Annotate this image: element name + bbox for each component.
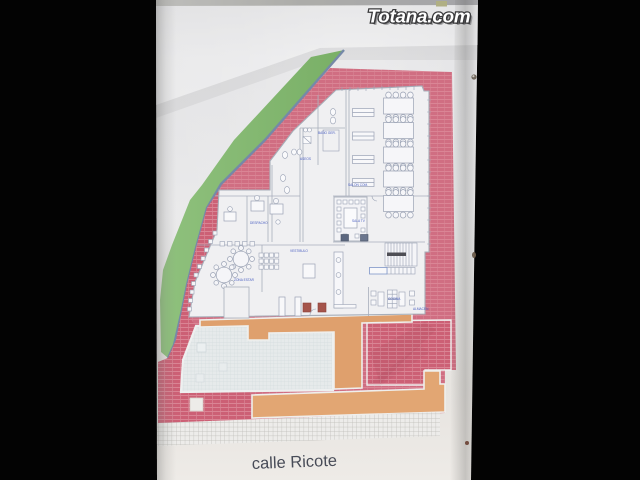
svg-text:ASEOS: ASEOS: [300, 157, 311, 161]
svg-text:calle Ricote: calle Ricote: [251, 452, 337, 473]
svg-text:DESPACHO: DESPACHO: [250, 221, 268, 225]
svg-text:VESTIBULO: VESTIBULO: [290, 249, 308, 253]
svg-text:SALA TV: SALA TV: [352, 219, 366, 223]
svg-text:SALON COM.: SALON COM.: [348, 183, 368, 187]
svg-text:COCINA: COCINA: [388, 297, 401, 301]
svg-text:Totana.com: Totana.com: [368, 6, 471, 27]
svg-text:BAÑO GER.: BAÑO GER.: [318, 130, 336, 135]
svg-text:ZONA ESTAR: ZONA ESTAR: [234, 278, 255, 282]
svg-text:ALMACEN: ALMACEN: [413, 307, 429, 311]
